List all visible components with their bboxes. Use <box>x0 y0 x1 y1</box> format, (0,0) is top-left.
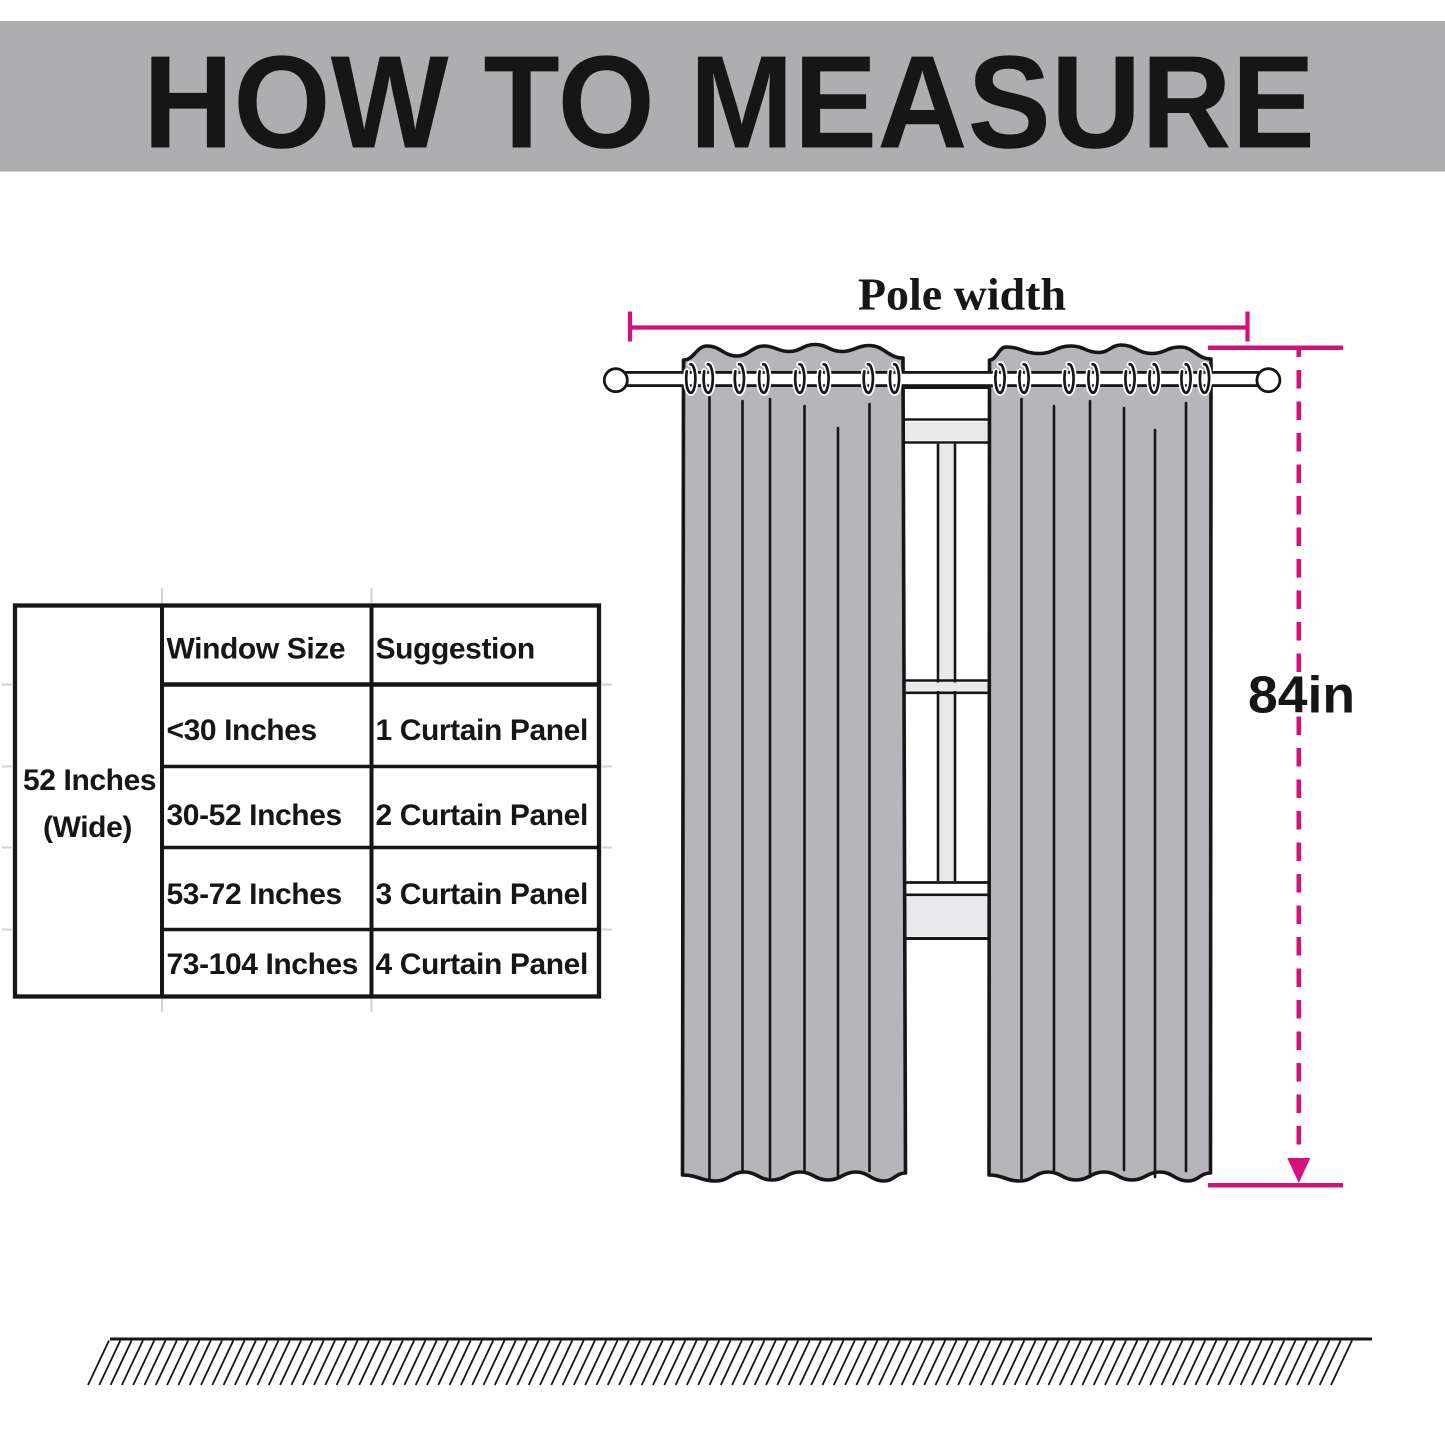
svg-text:HOW TO MEASURE: HOW TO MEASURE <box>143 29 1315 176</box>
svg-text:53-72 Inches: 53-72 Inches <box>167 878 342 911</box>
svg-text:Pole width: Pole width <box>858 270 1066 320</box>
svg-text:Suggestion: Suggestion <box>376 633 535 666</box>
svg-text:3 Curtain Panel: 3 Curtain Panel <box>376 878 588 911</box>
svg-text:Window Size: Window Size <box>167 633 346 666</box>
svg-text:30-52 Inches: 30-52 Inches <box>167 799 342 832</box>
svg-text:73-104 Inches: 73-104 Inches <box>167 948 359 981</box>
svg-text:52 Inches: 52 Inches <box>23 764 156 797</box>
svg-text:(Wide): (Wide) <box>43 811 132 844</box>
svg-text:1 Curtain Panel: 1 Curtain Panel <box>376 714 588 747</box>
svg-text:2 Curtain Panel: 2 Curtain Panel <box>376 799 588 832</box>
svg-text:<30 Inches: <30 Inches <box>167 714 317 747</box>
svg-text:84in: 84in <box>1248 667 1355 725</box>
svg-text:4 Curtain Panel: 4 Curtain Panel <box>376 948 588 981</box>
